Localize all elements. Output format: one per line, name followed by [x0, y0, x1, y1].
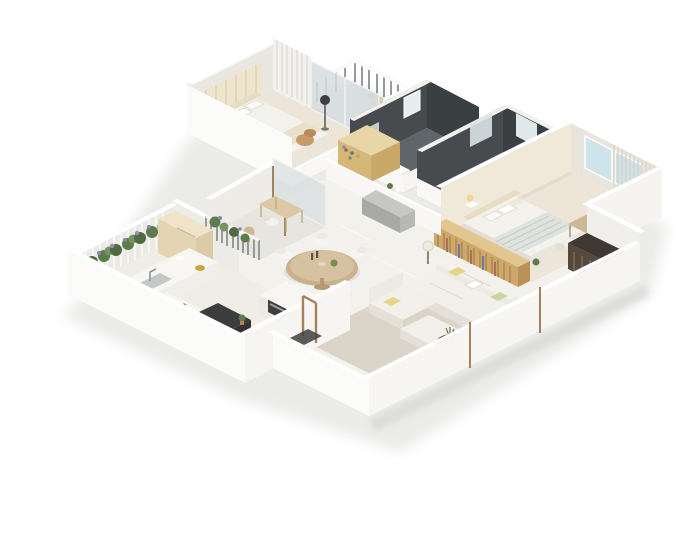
- shelf-item: [344, 148, 348, 152]
- planter-plant: [229, 227, 239, 237]
- floor-lamp-base: [321, 127, 329, 130]
- floor-lamp-shade: [320, 95, 330, 105]
- master-lamp-glow: [467, 195, 474, 202]
- isometric-apartment: [0, 0, 690, 534]
- shelf-item: [350, 151, 354, 155]
- armchair-back: [304, 129, 316, 137]
- credenza-vase: [396, 188, 400, 192]
- vanity-chair-back: [262, 215, 270, 221]
- fruit-bowl: [331, 260, 338, 267]
- golden-bowl: [195, 265, 205, 271]
- bottle: [311, 253, 313, 260]
- master-plant: [533, 259, 540, 266]
- dining-chair-back: [317, 233, 328, 239]
- shelf-item: [356, 154, 360, 158]
- dining-chair-back: [276, 248, 287, 254]
- table-bowl: [318, 262, 326, 266]
- flower: [123, 238, 127, 242]
- planter-plant: [220, 223, 229, 232]
- planter-flower: [218, 216, 222, 220]
- flower: [135, 231, 139, 235]
- shelf-item: [348, 156, 351, 159]
- desk-chair-back: [555, 244, 565, 251]
- dish: [176, 256, 184, 260]
- flower: [110, 244, 114, 248]
- cactus-pot: [240, 321, 244, 325]
- floor-plan-render: [0, 0, 690, 534]
- dining-chair-back: [357, 247, 368, 253]
- sofa-lamp-shade: [423, 241, 433, 251]
- flower: [147, 225, 151, 229]
- cactus: [239, 315, 246, 322]
- planter-plant: [241, 234, 250, 243]
- shelf-item: [342, 145, 345, 148]
- bottle: [316, 251, 318, 258]
- flower: [97, 251, 101, 255]
- planter-flower: [238, 227, 242, 231]
- credenza-plant: [387, 183, 393, 189]
